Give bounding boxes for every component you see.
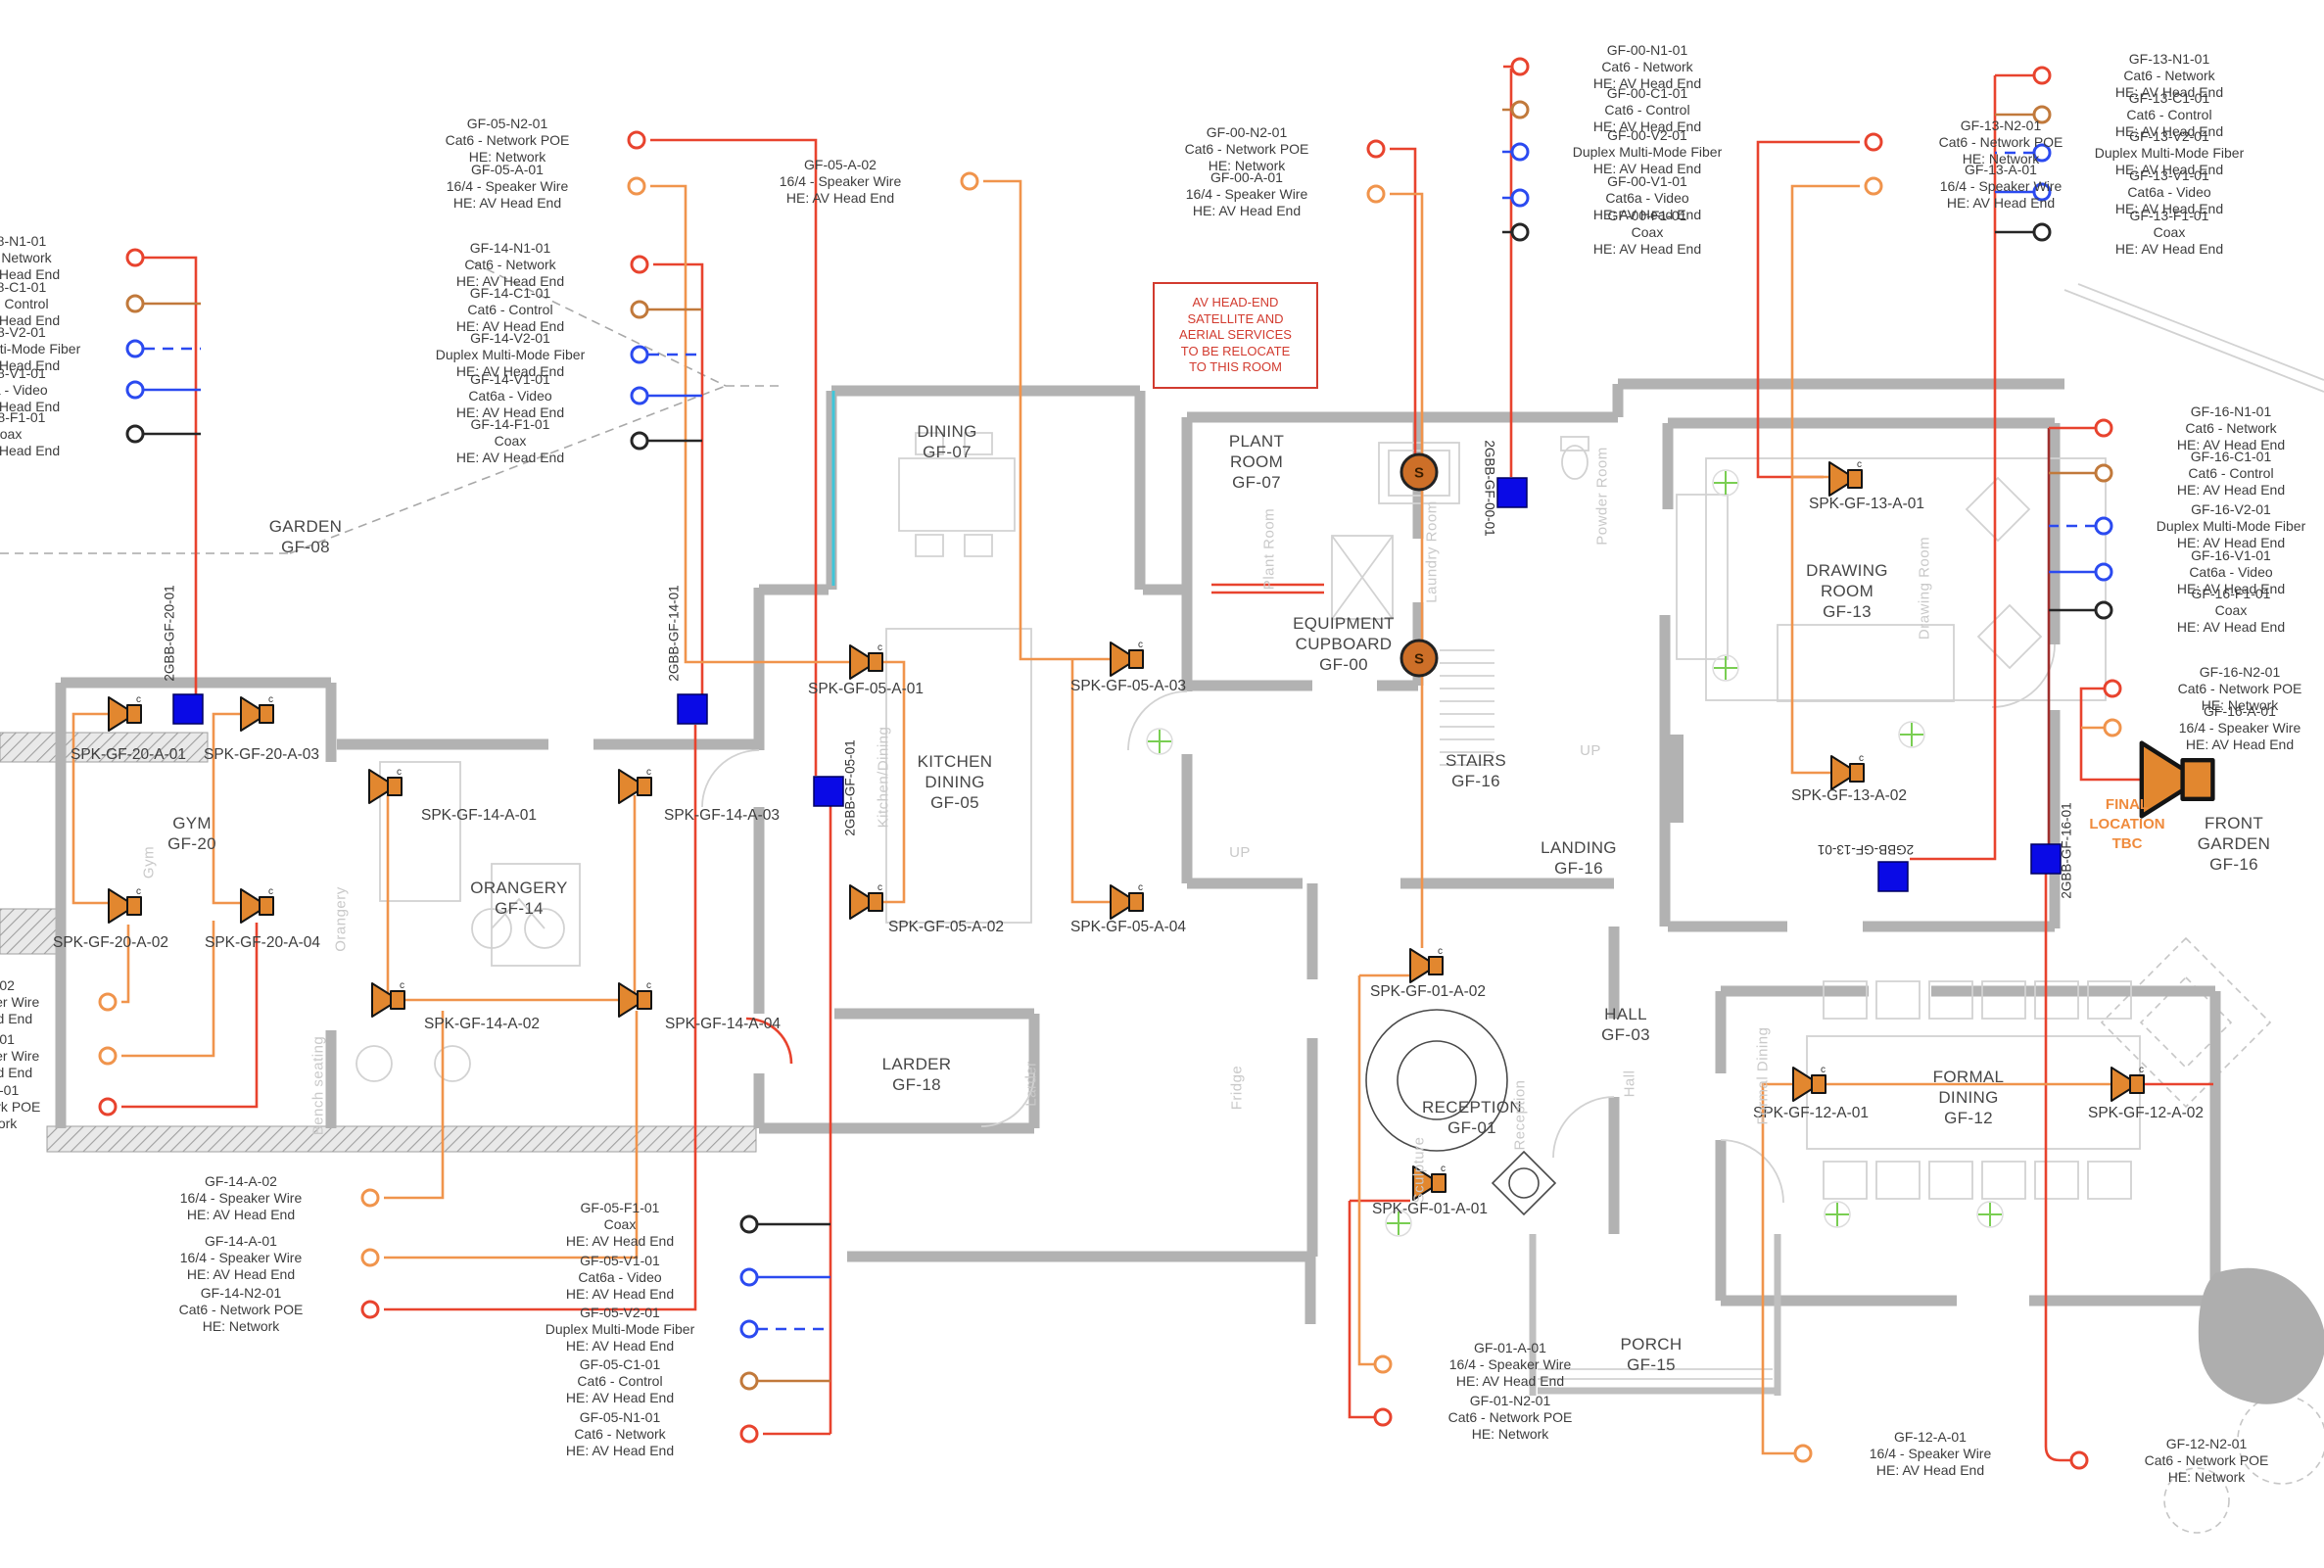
room-label-line: GF-00 [1226, 654, 1461, 675]
faded-label: Kitchen/Dining [876, 704, 892, 851]
callout-id: GF-16-C1-01 [2117, 449, 2324, 465]
callout-GF-05-V1-01: GF-05-V1-01Cat6a - VideoHE: AV Head End [506, 1253, 734, 1303]
faded-label: Larder [1023, 1011, 1040, 1158]
faded-label: Hall [1622, 1011, 1638, 1158]
callout-cable: Cat6 - Network POE [1133, 141, 1360, 158]
callout-GF-08-V1-01: GF-08-V1-01Cat6a - VideoHE: AV Head End [0, 365, 119, 415]
callout-id: GF-05-C1-01 [506, 1356, 734, 1373]
callout-cable: Cat6 - Network POE [394, 132, 621, 149]
callout-he: HE: Network [1397, 1426, 1624, 1443]
speaker-label: SPK-GF-05-A-03 [1020, 678, 1236, 695]
speaker-label: SPK-GF-01-A-02 [1320, 983, 1536, 1001]
room-label-gf-16: LANDINGGF-16 [1461, 837, 1696, 879]
callout-GF-05-C1-01: GF-05-C1-01Cat6 - ControlHE: AV Head End [506, 1356, 734, 1406]
callout-id: GF-20-A-02 [0, 977, 92, 994]
room-label-gf-12: FORMALDININGGF-12 [1851, 1067, 2086, 1128]
callout-he: HE: AV Head End [1133, 203, 1360, 219]
room-label-line: PORCH [1534, 1334, 1769, 1354]
room-label-gf-07: PLANTROOMGF-07 [1139, 431, 1374, 493]
speaker-label: SPK-GF-13-A-01 [1759, 496, 1974, 513]
callout-GF-05-V2-01: GF-05-V2-01Duplex Multi-Mode FiberHE: AV… [506, 1305, 734, 1354]
callout-GF-14-F1-01: GF-14-F1-01CoaxHE: AV Head End [397, 416, 624, 466]
room-label-line: DINING [837, 772, 1072, 792]
faded-label: Bench seating [310, 1013, 327, 1160]
callout-cable: Coax [0, 426, 119, 443]
callout-cable: 16/4 - Speaker Wire [0, 994, 92, 1011]
faded-label: Gym [141, 789, 158, 936]
callout-cable: Duplex Multi-Mode Fiber [1534, 144, 1761, 161]
room-label-gf-08: GARDENGF-08 [188, 516, 423, 557]
room-label-line: GYM [74, 813, 309, 833]
callout-he: HE: AV Head End [2117, 482, 2324, 499]
note-line: SATELLITE AND [1155, 311, 1316, 328]
device-label: 2GBB-GF-00-01 [1483, 415, 1497, 562]
callout-he: HE: AV Head End [0, 1065, 92, 1081]
room-label-line: GF-05 [837, 792, 1072, 813]
room-label-line: FRONT [2116, 813, 2324, 833]
callout-he: HE: AV Head End [127, 1207, 355, 1223]
callout-cable: Cat6a - Video [397, 388, 624, 404]
callout-id: GF-05-A-01 [394, 162, 621, 178]
device-label: 2GBB-GF-14-01 [667, 560, 682, 707]
room-label-line: GF-16 [1461, 858, 1696, 879]
callout-he: HE: AV Head End [2056, 241, 2283, 258]
callout-he: HE: AV Head End [397, 450, 624, 466]
callout-cable: 16/4 - Speaker Wire [127, 1190, 355, 1207]
callout-GF-12-A-01: GF-12-A-0116/4 - Speaker WireHE: AV Head… [1817, 1429, 2044, 1479]
callout-id: GF-14-C1-01 [397, 285, 624, 302]
callout-id: GF-05-N1-01 [506, 1409, 734, 1426]
callout-cable: Cat6 - Network [1534, 59, 1761, 75]
room-label-line: PLANT [1139, 431, 1374, 451]
label-layer: AV HEAD-ENDSATELLITE ANDAERIAL SERVICEST… [0, 0, 2324, 1568]
callout-id: GF-14-A-02 [127, 1173, 355, 1190]
callout-id: GF-05-A-02 [727, 157, 954, 173]
callout-cable: Cat6a - Video [1534, 190, 1761, 207]
callout-id: GF-16-V2-01 [2117, 501, 2324, 518]
speaker-label: SPK-GF-14-A-03 [614, 807, 830, 825]
callout-id: GF-05-V2-01 [506, 1305, 734, 1321]
callout-cable: Cat6 - Network POE [0, 1099, 92, 1116]
speaker-label: SPK-GF-13-A-02 [1741, 787, 1957, 805]
faded-label: Formal Dining [1755, 1003, 1772, 1150]
room-label-gf-14: ORANGERYGF-14 [402, 878, 637, 919]
callout-cable: 16/4 - Speaker Wire [394, 178, 621, 195]
callout-cable: Cat6 - Control [2056, 107, 2283, 123]
callout-cable: Duplex Multi-Mode Fiber [506, 1321, 734, 1338]
speaker-label: SPK-GF-05-A-04 [1020, 919, 1236, 936]
callout-id: GF-08-F1-01 [0, 409, 119, 426]
callout-id: GF-16-V1-01 [2117, 547, 2324, 564]
room-label-line: KITCHEN [837, 751, 1072, 772]
room-label-gf-15: PORCHGF-15 [1534, 1334, 1769, 1375]
callout-cable: 16/4 - Speaker Wire [1133, 186, 1360, 203]
room-label-line: GF-18 [799, 1074, 1034, 1095]
callout-id: GF-05-N2-01 [394, 116, 621, 132]
callout-id: GF-05-F1-01 [506, 1200, 734, 1216]
callout-he: HE: AV Head End [1397, 1373, 1624, 1390]
callout-id: GF-13-C1-01 [2056, 90, 2283, 107]
callout-id: GF-00-V1-01 [1534, 173, 1761, 190]
callout-id: GF-08-V2-01 [0, 324, 119, 341]
faded-label: Sculpture [1411, 1097, 1428, 1244]
callout-GF-16-V2-01: GF-16-V2-01Duplex Multi-Mode FiberHE: AV… [2117, 501, 2324, 551]
callout-cable: 16/4 - Speaker Wire [727, 173, 954, 190]
callout-id: GF-13-F1-01 [2056, 208, 2283, 224]
callout-id: GF-08-N1-01 [0, 233, 119, 250]
callout-GF-14-N1-01: GF-14-N1-01Cat6 - NetworkHE: AV Head End [397, 240, 624, 290]
callout-id: GF-13-V1-01 [2056, 167, 2283, 184]
callout-cable: Cat6 - Network [2117, 420, 2324, 437]
note-line: AV HEAD-END [1155, 295, 1316, 311]
callout-he: HE: AV Head End [506, 1338, 734, 1354]
callout-cable: Cat6a - Video [0, 382, 119, 399]
faded-label: UP [1517, 742, 1664, 759]
speaker-label: SPK-GF-01-A-01 [1322, 1201, 1538, 1218]
room-label-line: GF-16 [1358, 771, 1593, 791]
callout-he: HE: AV Head End [1534, 241, 1761, 258]
callout-cable: Duplex Multi-Mode Fiber [397, 347, 624, 363]
callout-id: GF-20-A-01 [0, 1031, 92, 1048]
callout-cable: Cat6 - Network POE [2093, 1452, 2320, 1469]
callout-id: GF-16-N2-01 [2126, 664, 2324, 681]
room-label-gf-07: DININGGF-07 [830, 421, 1065, 462]
note-line: TO BE RELOCATE [1155, 344, 1316, 360]
note-line: AERIAL SERVICES [1155, 327, 1316, 344]
callout-cable: Cat6 - Control [1534, 102, 1761, 119]
callout-id: GF-00-C1-01 [1534, 85, 1761, 102]
callout-id: GF-00-V2-01 [1534, 127, 1761, 144]
room-label-line: GARDEN [2116, 833, 2324, 854]
callout-he: HE: Network [127, 1318, 355, 1335]
room-label-line: GF-08 [188, 537, 423, 557]
callout-id: GF-16-A-01 [2126, 703, 2324, 720]
callout-id: GF-14-V1-01 [397, 371, 624, 388]
callout-cable: 16/4 - Speaker Wire [2126, 720, 2324, 736]
callout-id: GF-08-V1-01 [0, 365, 119, 382]
callout-cable: Coax [1534, 224, 1761, 241]
callout-GF-05-A-02: GF-05-A-0216/4 - Speaker WireHE: AV Head… [727, 157, 954, 207]
callout-cable: 16/4 - Speaker Wire [1817, 1446, 2044, 1462]
room-label-line: GARDEN [188, 516, 423, 537]
callout-GF-14-A-02: GF-14-A-0216/4 - Speaker WireHE: AV Head… [127, 1173, 355, 1223]
callout-GF-08-C1-01: GF-08-C1-01Cat6 - ControlHE: AV Head End [0, 279, 119, 329]
callout-cable: Duplex Multi-Mode Fiber [2056, 145, 2283, 162]
device-label: 2GBB-GF-13-01 [1792, 842, 1939, 857]
callout-GF-05-A-01: GF-05-A-0116/4 - Speaker WireHE: AV Head… [394, 162, 621, 212]
callout-id: GF-12-N2-01 [2093, 1436, 2320, 1452]
device-label: 2GBB-GF-20-01 [163, 560, 177, 707]
speaker-label: SPK-GF-14-A-04 [615, 1016, 830, 1033]
callout-GF-08-N1-01: GF-08-N1-01Cat6 - NetworkHE: AV Head End [0, 233, 119, 283]
room-label-line: RECEPTION [1354, 1097, 1589, 1117]
callout-id: GF-14-N2-01 [127, 1285, 355, 1302]
callout-id: GF-14-A-01 [127, 1233, 355, 1250]
callout-cable: Cat6 - Network [397, 257, 624, 273]
faded-label: UP [1166, 844, 1313, 861]
callout-he: HE: AV Head End [727, 190, 954, 207]
callout-id: GF-13-N1-01 [2056, 51, 2283, 68]
faded-label: Laundry Room [1424, 479, 1441, 626]
callout-id: GF-00-N2-01 [1133, 124, 1360, 141]
callout-GF-13-F1-01: GF-13-F1-01CoaxHE: AV Head End [2056, 208, 2283, 258]
room-label-line: GF-07 [830, 442, 1065, 462]
callout-id: GF-00-F1-01 [1534, 208, 1761, 224]
room-label-line: GF-14 [402, 898, 637, 919]
callout-GF-20-A-02: GF-20-A-0216/4 - Speaker WireHE: AV Head… [0, 977, 92, 1027]
callout-he: HE: AV Head End [1817, 1462, 2044, 1479]
room-label-line: FORMAL [1851, 1067, 2086, 1087]
speaker-label: SPK-GF-20-A-03 [154, 746, 369, 764]
callout-id: GF-14-F1-01 [397, 416, 624, 433]
room-label-line: GF-16 [2116, 854, 2324, 875]
callout-he: HE: Network [0, 1116, 92, 1132]
device-label: 2GBB-GF-16-01 [2060, 778, 2074, 925]
room-label-line: GF-07 [1139, 472, 1374, 493]
room-label-gf-18: LARDERGF-18 [799, 1054, 1034, 1095]
faded-label: Reception [1512, 1042, 1529, 1189]
callout-id: GF-16-F1-01 [2117, 586, 2324, 602]
callout-id: GF-13-V2-01 [2056, 128, 2283, 145]
callout-cable: Cat6 - Network POE [127, 1302, 355, 1318]
callout-id: GF-01-N2-01 [1397, 1393, 1624, 1409]
callout-GF-16-A-01: GF-16-A-0116/4 - Speaker WireHE: AV Head… [2126, 703, 2324, 753]
callout-he: HE: AV Head End [0, 443, 119, 459]
room-label-line: GF-20 [74, 833, 309, 854]
callout-he: HE: AV Head End [2117, 619, 2324, 636]
callout-id: GF-14-N1-01 [397, 240, 624, 257]
faded-label: Drawing Room [1917, 515, 1933, 662]
callout-id: GF-16-N1-01 [2117, 404, 2324, 420]
room-label-line: DINING [1851, 1087, 2086, 1108]
room-label-gf-20: GYMGF-20 [74, 813, 309, 854]
callout-he: HE: Network [2093, 1469, 2320, 1486]
callout-he: HE: AV Head End [127, 1266, 355, 1283]
room-label-line: GF-12 [1851, 1108, 2086, 1128]
callout-id: GF-20-N2-01 [0, 1082, 92, 1099]
callout-GF-00-F1-01: GF-00-F1-01CoaxHE: AV Head End [1534, 208, 1761, 258]
callout-GF-12-N2-01: GF-12-N2-01Cat6 - Network POEHE: Network [2093, 1436, 2320, 1486]
callout-GF-01-N2-01: GF-01-N2-01Cat6 - Network POEHE: Network [1397, 1393, 1624, 1443]
callout-cable: Cat6 - Network POE [1397, 1409, 1624, 1426]
callout-cable: Cat6 - Network [0, 250, 119, 266]
callout-id: GF-12-A-01 [1817, 1429, 2044, 1446]
callout-he: HE: AV Head End [506, 1443, 734, 1459]
callout-GF-20-A-01: GF-20-A-0116/4 - Speaker WireHE: AV Head… [0, 1031, 92, 1081]
callout-he: HE: AV Head End [506, 1286, 734, 1303]
callout-GF-14-V1-01: GF-14-V1-01Cat6a - VideoHE: AV Head End [397, 371, 624, 421]
callout-cable: Coax [2056, 224, 2283, 241]
callout-GF-20-N2-01: GF-20-N2-01Cat6 - Network POEHE: Network [0, 1082, 92, 1132]
floor-plan-drawing: ccccccccccccccccccSS AV HEAD-ENDSATELLIT… [0, 0, 2324, 1568]
callout-GF-00-N2-01: GF-00-N2-01Cat6 - Network POEHE: Network [1133, 124, 1360, 174]
callout-cable: 16/4 - Speaker Wire [127, 1250, 355, 1266]
room-label-line: ROOM [1139, 451, 1374, 472]
speaker-label: SPK-GF-05-A-01 [758, 681, 973, 698]
speaker-label: SPK-GF-14-A-01 [371, 807, 587, 825]
callout-cable: Cat6 - Network [2056, 68, 2283, 84]
room-label-line: CUPBOARD [1226, 634, 1461, 654]
callout-cable: Coax [2117, 602, 2324, 619]
callout-he: HE: AV Head End [0, 1011, 92, 1027]
relocation-note: AV HEAD-ENDSATELLITE ANDAERIAL SERVICEST… [1153, 282, 1318, 389]
faded-label: Powder Room [1594, 423, 1611, 570]
room-label-gf-01: RECEPTIONGF-01 [1354, 1097, 1589, 1138]
callout-cable: Cat6a - Video [2117, 564, 2324, 581]
note-line: TO THIS ROOM [1155, 359, 1316, 376]
callout-cable: Duplex Multi-Mode Fiber [0, 341, 119, 357]
callout-cable: Coax [506, 1216, 734, 1233]
callout-cable: Cat6 - Control [506, 1373, 734, 1390]
callout-id: GF-14-V2-01 [397, 330, 624, 347]
callout-GF-05-N2-01: GF-05-N2-01Cat6 - Network POEHE: Network [394, 116, 621, 166]
callout-cable: Cat6 - Network POE [2126, 681, 2324, 697]
room-label-line: GF-15 [1534, 1354, 1769, 1375]
callout-cable: Coax [397, 433, 624, 450]
faded-label: Plant Room [1261, 476, 1278, 623]
room-label-gf-05: KITCHENDININGGF-05 [837, 751, 1072, 813]
callout-id: GF-00-A-01 [1133, 169, 1360, 186]
callout-GF-16-N1-01: GF-16-N1-01Cat6 - NetworkHE: AV Head End [2117, 404, 2324, 453]
callout-he: HE: AV Head End [506, 1390, 734, 1406]
room-label-line: LANDING [1461, 837, 1696, 858]
callout-GF-16-F1-01: GF-16-F1-01CoaxHE: AV Head End [2117, 586, 2324, 636]
callout-cable: Cat6 - Control [2117, 465, 2324, 482]
callout-GF-00-V2-01: GF-00-V2-01Duplex Multi-Mode FiberHE: AV… [1534, 127, 1761, 177]
callout-he: HE: AV Head End [394, 195, 621, 212]
callout-he: HE: AV Head End [506, 1233, 734, 1250]
speaker-label: SPK-GF-14-A-02 [374, 1016, 590, 1033]
callout-cable: Cat6a - Video [506, 1269, 734, 1286]
room-label-line: DINING [830, 421, 1065, 442]
callout-he: HE: AV Head End [2126, 736, 2324, 753]
callout-GF-05-F1-01: GF-05-F1-01CoaxHE: AV Head End [506, 1200, 734, 1250]
callout-id: GF-08-C1-01 [0, 279, 119, 296]
callout-id: GF-05-V1-01 [506, 1253, 734, 1269]
callout-GF-05-N1-01: GF-05-N1-01Cat6 - NetworkHE: AV Head End [506, 1409, 734, 1459]
room-label-gf-16: FRONTGARDENGF-16 [2116, 813, 2324, 875]
room-label-line: LARDER [799, 1054, 1034, 1074]
faded-label: Orangery [333, 846, 350, 993]
callout-GF-16-C1-01: GF-16-C1-01Cat6 - ControlHE: AV Head End [2117, 449, 2324, 499]
callout-GF-08-F1-01: GF-08-F1-01CoaxHE: AV Head End [0, 409, 119, 459]
room-label-line: ORANGERY [402, 878, 637, 898]
room-label-line: GF-01 [1354, 1117, 1589, 1138]
callout-GF-00-A-01: GF-00-A-0116/4 - Speaker WireHE: AV Head… [1133, 169, 1360, 219]
callout-cable: 16/4 - Speaker Wire [0, 1048, 92, 1065]
callout-cable: Cat6 - Control [0, 296, 119, 312]
callout-GF-14-C1-01: GF-14-C1-01Cat6 - ControlHE: AV Head End [397, 285, 624, 335]
callout-GF-14-A-01: GF-14-A-0116/4 - Speaker WireHE: AV Head… [127, 1233, 355, 1283]
callout-id: GF-00-N1-01 [1534, 42, 1761, 59]
callout-cable: Cat6 - Network [506, 1426, 734, 1443]
faded-label: Fridge [1229, 1015, 1246, 1162]
callout-cable: Duplex Multi-Mode Fiber [2117, 518, 2324, 535]
callout-GF-14-N2-01: GF-14-N2-01Cat6 - Network POEHE: Network [127, 1285, 355, 1335]
callout-cable: Cat6 - Control [397, 302, 624, 318]
callout-cable: Cat6a - Video [2056, 184, 2283, 201]
